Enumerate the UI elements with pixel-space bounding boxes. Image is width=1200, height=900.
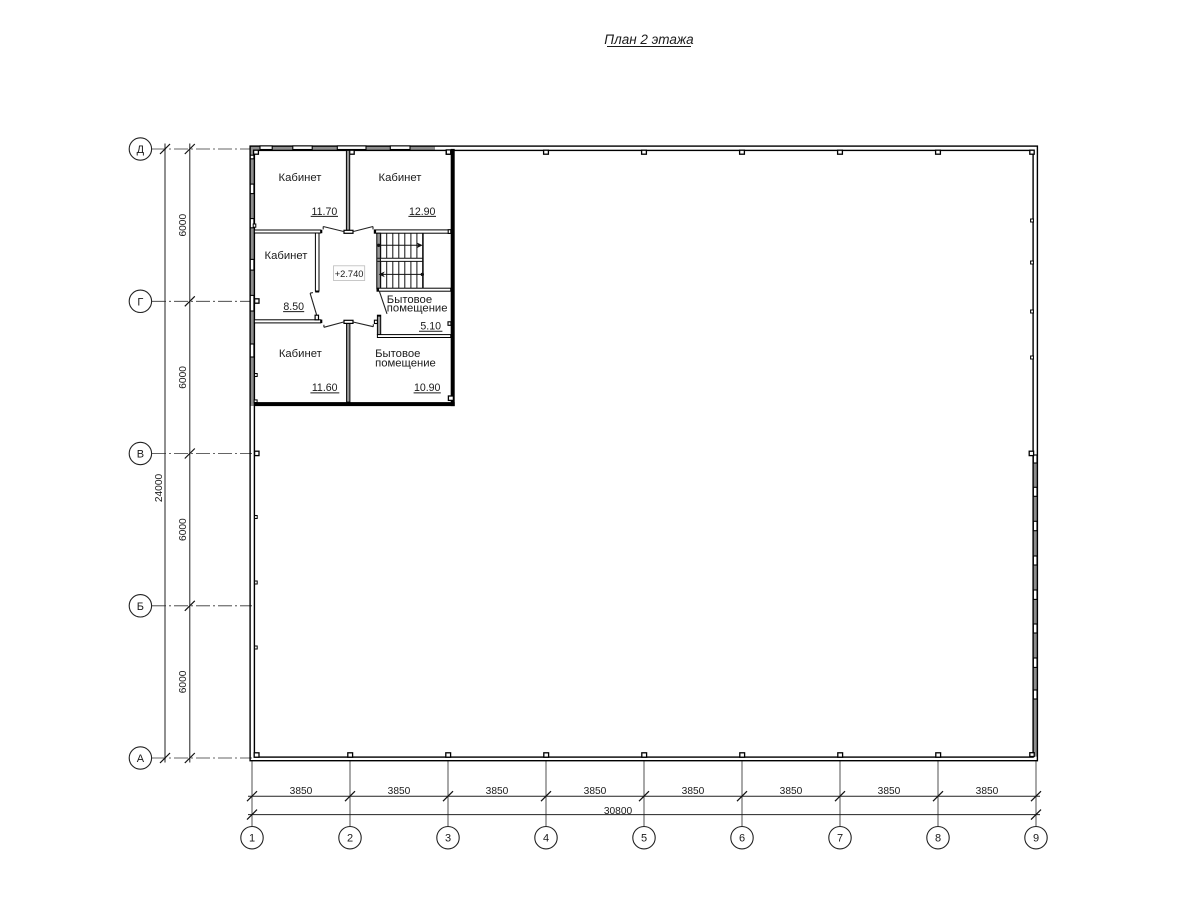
svg-text:11.60: 11.60 xyxy=(312,382,338,394)
svg-text:Кабинет: Кабинет xyxy=(265,250,308,262)
svg-text:1: 1 xyxy=(249,833,255,845)
svg-text:Г: Г xyxy=(137,296,143,308)
svg-text:3850: 3850 xyxy=(976,786,999,797)
svg-text:3: 3 xyxy=(445,833,451,845)
svg-text:Кабинет: Кабинет xyxy=(279,348,322,360)
svg-text:6000: 6000 xyxy=(178,518,189,541)
svg-text:5.10: 5.10 xyxy=(420,320,441,332)
svg-text:3850: 3850 xyxy=(486,786,509,797)
svg-text:2: 2 xyxy=(347,833,353,845)
svg-text:3850: 3850 xyxy=(584,786,607,797)
svg-text:8.50: 8.50 xyxy=(283,301,304,313)
svg-text:3850: 3850 xyxy=(878,786,901,797)
svg-text:3850: 3850 xyxy=(780,786,803,797)
svg-text:24000: 24000 xyxy=(154,474,165,503)
svg-text:помещение: помещение xyxy=(375,357,436,369)
svg-text:6000: 6000 xyxy=(178,366,189,389)
svg-text:Кабинет: Кабинет xyxy=(379,172,422,184)
svg-text:3850: 3850 xyxy=(290,786,313,797)
svg-text:7: 7 xyxy=(837,833,843,845)
svg-text:Б: Б xyxy=(137,601,144,613)
svg-text:6: 6 xyxy=(739,833,745,845)
svg-text:4: 4 xyxy=(543,833,549,845)
svg-text:3850: 3850 xyxy=(388,786,411,797)
svg-text:6000: 6000 xyxy=(178,214,189,237)
svg-text:5: 5 xyxy=(641,833,647,845)
svg-text:Д: Д xyxy=(137,144,145,156)
svg-text:+2.740: +2.740 xyxy=(335,269,364,279)
svg-text:План 2 этажа: План 2 этажа xyxy=(604,32,694,47)
svg-text:помещение: помещение xyxy=(387,302,448,314)
svg-text:10.90: 10.90 xyxy=(414,382,441,394)
svg-text:Кабинет: Кабинет xyxy=(279,172,322,184)
svg-text:А: А xyxy=(137,753,145,765)
svg-text:8: 8 xyxy=(935,833,941,845)
svg-text:В: В xyxy=(137,449,144,461)
svg-text:9: 9 xyxy=(1033,833,1039,845)
svg-text:3850: 3850 xyxy=(682,786,705,797)
svg-text:30800: 30800 xyxy=(604,806,633,817)
svg-text:6000: 6000 xyxy=(178,670,189,693)
